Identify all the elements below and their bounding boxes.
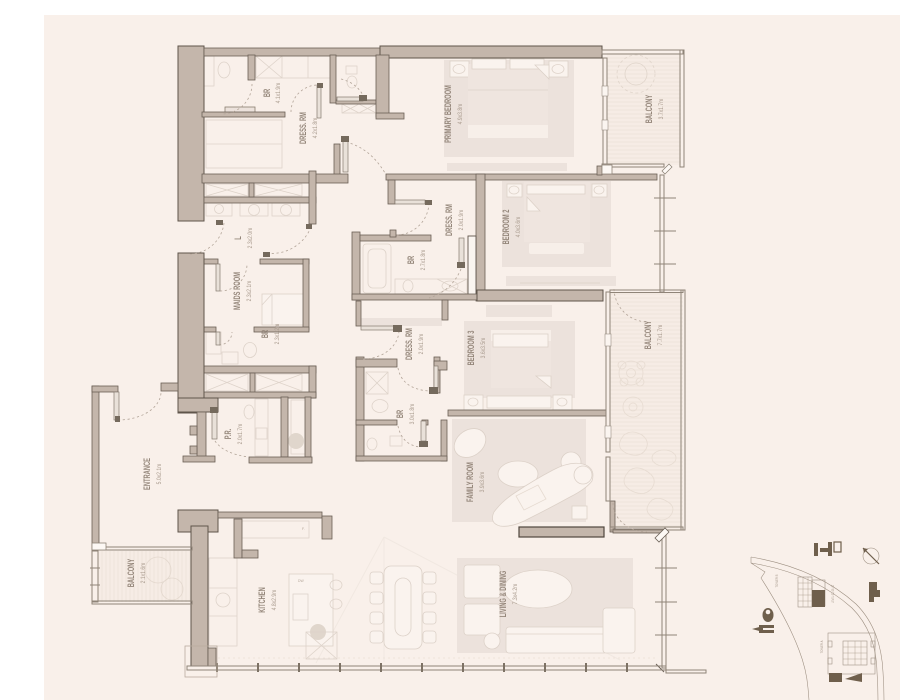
svg-text:BR: BR <box>395 410 406 419</box>
svg-text:2.3x1.2m: 2.3x1.2m <box>274 324 281 345</box>
svg-text:2.3x2.0m: 2.3x2.0m <box>247 228 254 249</box>
svg-text:LIVING & DINING: LIVING & DINING <box>498 571 509 618</box>
svg-text:2.3x2.1m: 2.3x2.1m <box>246 281 253 302</box>
svg-text:BEDROOM 2: BEDROOM 2 <box>501 209 512 244</box>
svg-text:2.0x1.7m: 2.0x1.7m <box>237 424 244 445</box>
svg-text:DRESS. RM: DRESS. RM <box>298 112 309 144</box>
svg-text:DRESS. RM: DRESS. RM <box>444 204 455 236</box>
svg-text:BR: BR <box>406 256 417 265</box>
svg-text:3.9x3.6m: 3.9x3.6m <box>479 472 486 493</box>
svg-text:FAMILY ROOM: FAMILY ROOM <box>465 462 476 502</box>
svg-text:BR: BR <box>262 89 273 98</box>
svg-text:F.: F. <box>302 527 305 531</box>
svg-text:4.8x2.9m: 4.8x2.9m <box>271 590 278 611</box>
svg-text:4.2x1.8m: 4.2x1.8m <box>312 118 319 139</box>
svg-text:PRIMARY BEDROOM: PRIMARY BEDROOM <box>443 85 454 143</box>
svg-text:3.0x1.8m: 3.0x1.8m <box>409 404 416 425</box>
svg-text:P.R.: P.R. <box>223 429 234 439</box>
svg-text:3.7x1.7m: 3.7x1.7m <box>658 99 665 120</box>
svg-text:DRESS. RM: DRESS. RM <box>404 328 415 360</box>
svg-text:BEDROOM 3: BEDROOM 3 <box>466 330 477 365</box>
svg-text:2.0x1.9m: 2.0x1.9m <box>418 334 425 355</box>
svg-text:4.1x1.9m: 4.1x1.9m <box>275 83 282 104</box>
svg-text:4.0x3.6m: 4.0x3.6m <box>515 217 522 238</box>
svg-text:7.3x4.2m: 7.3x4.2m <box>512 584 519 605</box>
svg-text:5.0x2.1m: 5.0x2.1m <box>156 464 163 485</box>
svg-text:BR: BR <box>260 330 271 339</box>
svg-text:L: L <box>233 236 244 240</box>
svg-text:LEVEL 03, 05, 07: LEVEL 03, 05, 07 <box>831 584 836 603</box>
svg-text:4.9x3.8m: 4.9x3.8m <box>457 104 464 125</box>
svg-text:TOWER A: TOWER A <box>820 640 825 654</box>
svg-text:7.7x1.7m: 7.7x1.7m <box>657 325 664 346</box>
svg-text:2.1x1.6m: 2.1x1.6m <box>140 563 147 584</box>
svg-text:BALCONY: BALCONY <box>643 320 654 349</box>
svg-text:3.6x3.5m: 3.6x3.5m <box>480 338 487 359</box>
svg-text:2.7x1.8m: 2.7x1.8m <box>420 250 427 271</box>
svg-text:DW: DW <box>298 579 304 583</box>
svg-text:ENTRANCE: ENTRANCE <box>142 458 153 490</box>
svg-text:2.0x1.9m: 2.0x1.9m <box>458 210 465 231</box>
svg-text:MAIDS ROOM: MAIDS ROOM <box>232 272 243 310</box>
svg-text:BALCONY: BALCONY <box>126 558 137 587</box>
svg-text:KITCHEN: KITCHEN <box>257 587 268 613</box>
svg-text:BALCONY: BALCONY <box>644 94 655 123</box>
svg-text:TOWER B: TOWER B <box>775 574 780 588</box>
